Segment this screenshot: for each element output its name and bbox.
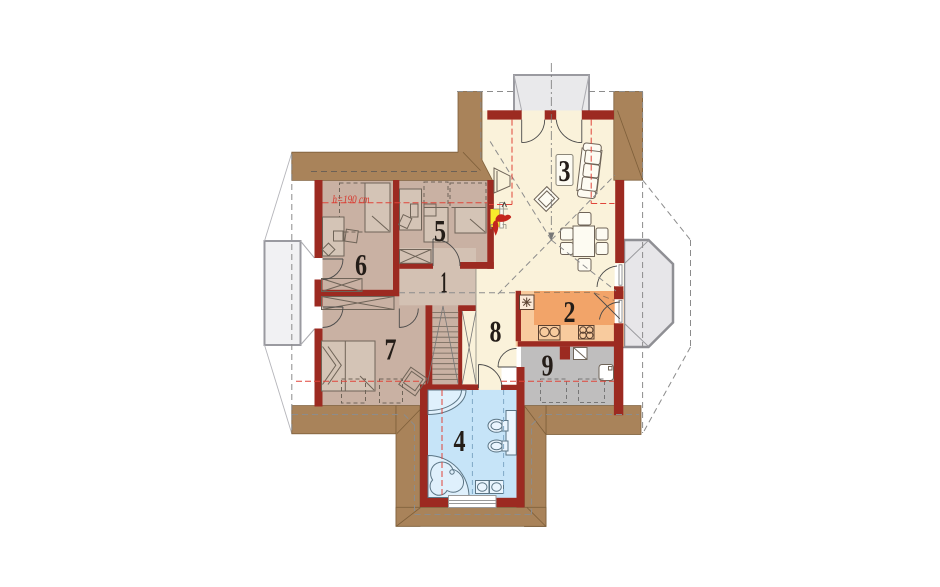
- svg-text:8: 8: [490, 314, 502, 349]
- svg-text:5: 5: [434, 213, 446, 248]
- svg-text:3: 3: [559, 153, 571, 188]
- svg-text:9: 9: [542, 348, 554, 383]
- svg-text:2: 2: [564, 294, 576, 329]
- svg-text:7: 7: [385, 332, 397, 367]
- svg-text:6: 6: [355, 247, 367, 282]
- svg-text:1: 1: [441, 265, 448, 300]
- svg-text:h=190 cm: h=190 cm: [333, 194, 370, 206]
- svg-text:4: 4: [454, 423, 466, 458]
